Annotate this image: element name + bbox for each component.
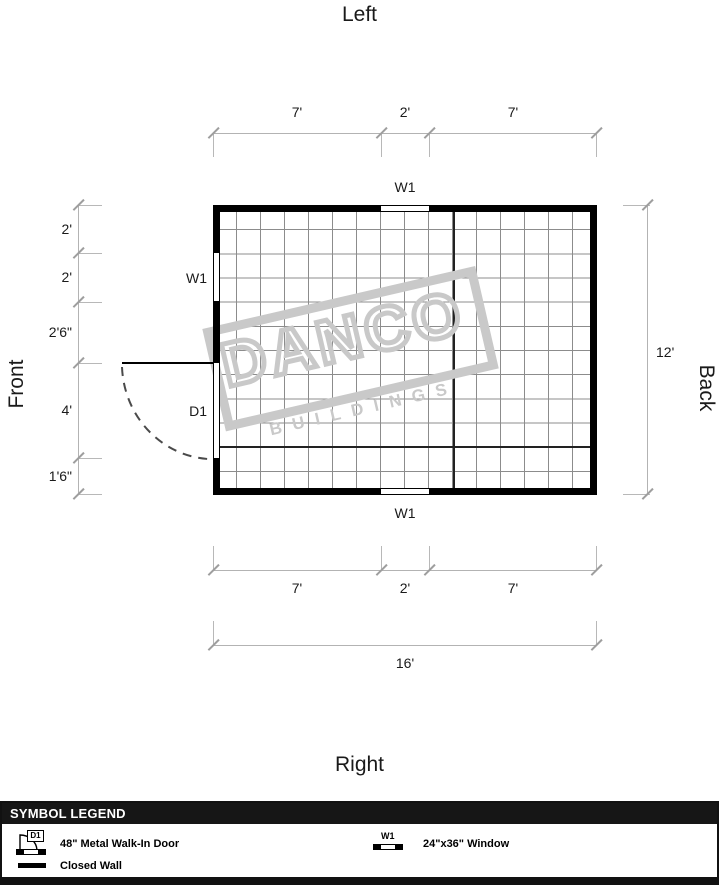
symbol-legend: SYMBOL LEGEND D1 48" Metal Walk-In Door … [0, 801, 719, 885]
legend-door-label: 48" Metal Walk-In Door [60, 838, 179, 850]
wall-segment [396, 844, 403, 850]
dimension-label: 2' [22, 221, 72, 237]
legend-header-title: SYMBOL LEGEND [10, 806, 126, 821]
side-title-back: Back [693, 338, 719, 438]
wall-segment [16, 849, 23, 855]
window-icon: W1 [373, 831, 407, 855]
legend-window-label: 24"x36" Window [423, 838, 509, 850]
extension-line [213, 133, 214, 157]
wall-segment [373, 844, 380, 850]
window-glass [380, 844, 396, 850]
window-label-front: W1 [157, 270, 207, 286]
door-gap [23, 849, 39, 855]
dimension-line [78, 205, 79, 495]
dimension-label: 2' [355, 580, 455, 596]
window-label-bottom: W1 [355, 505, 455, 521]
dimension-label: 7' [463, 580, 563, 596]
window-bottom [381, 488, 429, 495]
dimension-label: 16' [355, 655, 455, 671]
dimension-label: 4' [22, 402, 72, 418]
extension-line [78, 205, 102, 206]
window-top [381, 205, 429, 212]
legend-header-bar: SYMBOL LEGEND [2, 803, 717, 824]
dimension-label: 7' [247, 104, 347, 120]
wall-back [590, 205, 597, 495]
door-code-box: D1 [27, 830, 44, 842]
dimension-label: 2' [355, 104, 455, 120]
side-title-right: Right [0, 753, 719, 777]
dimension-label: 2' [22, 269, 72, 285]
dimension-line [213, 133, 597, 134]
dimension-label: 12' [656, 344, 674, 360]
dimension-label: 2'6" [22, 324, 72, 340]
wall-segment [39, 849, 46, 855]
window-label-top: W1 [355, 179, 455, 195]
extension-line [78, 302, 102, 303]
side-title-left: Left [0, 3, 719, 27]
extension-line [78, 253, 102, 254]
dimension-label: 7' [247, 580, 347, 596]
dimension-line [647, 205, 648, 495]
grid-major-line-horizontal [220, 446, 590, 448]
door-label: D1 [157, 403, 207, 419]
dimension-line [213, 645, 597, 646]
extension-line [596, 133, 597, 157]
walk-in-door-icon: D1 [16, 830, 50, 856]
extension-line [78, 494, 102, 495]
dimension-label: 1'6" [22, 468, 72, 484]
legend-closed-wall-label: Closed Wall [60, 860, 122, 872]
extension-line [78, 363, 102, 364]
floor-plan-page: Left Right Front Back 7' 2' 7' 2' 2' 2'6… [0, 0, 719, 885]
dimension-line [213, 570, 597, 571]
extension-line [381, 133, 382, 157]
extension-line [78, 458, 102, 459]
closed-wall-icon [18, 863, 46, 868]
window-code: W1 [381, 831, 395, 841]
window-front [213, 253, 220, 301]
door-wall-bar [16, 849, 46, 855]
side-title-front: Front [4, 334, 30, 434]
dimension-label: 7' [463, 104, 563, 120]
window-wall-bar [373, 844, 403, 850]
extension-line [429, 133, 430, 157]
